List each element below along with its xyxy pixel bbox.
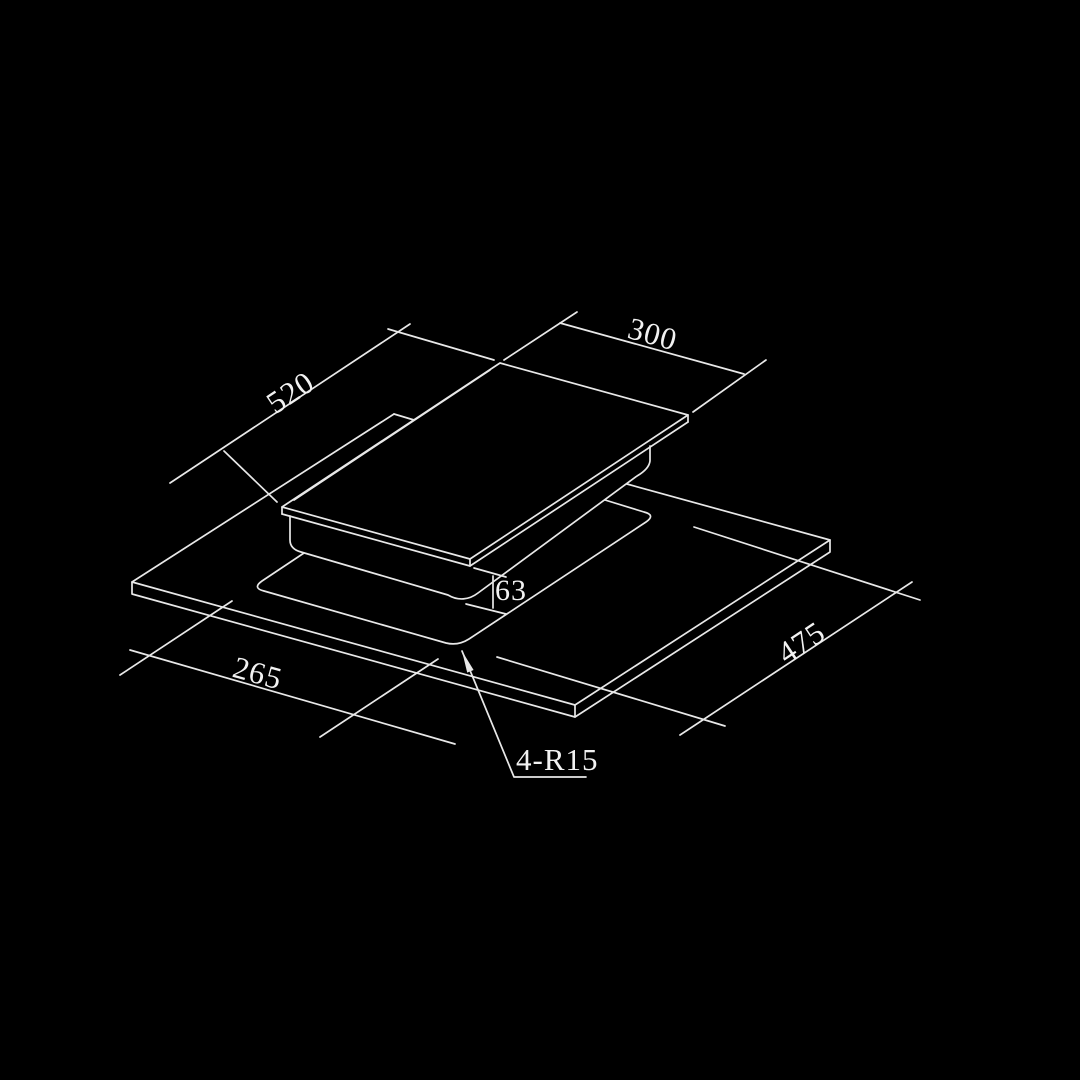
glass-inner-frame-line xyxy=(294,370,490,500)
corner-radius-label: 4-R15 xyxy=(516,742,599,777)
dim-hob-depth-label: 520 xyxy=(260,364,321,421)
dimension-cutout-width xyxy=(120,601,455,744)
dim-300-extension-b xyxy=(693,360,766,412)
dim-body-height-label: 63 xyxy=(495,574,527,607)
dim-475-extension-a xyxy=(694,527,920,600)
glass-top-outline xyxy=(282,363,688,559)
cutout-outline xyxy=(257,500,650,644)
worktop-cutout xyxy=(257,500,650,644)
leader-arrowhead-group xyxy=(462,651,474,673)
dim-265-line xyxy=(130,650,455,744)
worktop-thickness-edges xyxy=(132,540,830,717)
drawing-linework xyxy=(120,312,920,777)
dim-520-extension-a xyxy=(388,329,494,360)
dim-265-extension-b xyxy=(320,659,438,737)
dim-300-extension-a xyxy=(504,312,577,360)
dim-cutout-width-label: 265 xyxy=(229,649,286,696)
technical-drawing-canvas: 300 520 63 475 265 4-R15 xyxy=(0,0,1080,1080)
glass-underside-edge xyxy=(282,422,688,566)
drawing-labels: 300 520 63 475 265 4-R15 xyxy=(229,310,831,777)
dim-cutout-depth-label: 475 xyxy=(771,614,832,671)
cooktop-unit xyxy=(282,363,688,599)
worktop-back-right-edge xyxy=(394,414,414,420)
dim-475-extension-b xyxy=(497,657,725,726)
drawing-page: 300 520 63 475 265 4-R15 xyxy=(0,0,1080,1080)
leader-arrowhead-icon xyxy=(462,651,474,673)
dim-hob-width-label: 300 xyxy=(624,310,681,357)
cooktop-body-outline xyxy=(290,446,650,599)
dim-520-extension-b xyxy=(224,451,277,502)
